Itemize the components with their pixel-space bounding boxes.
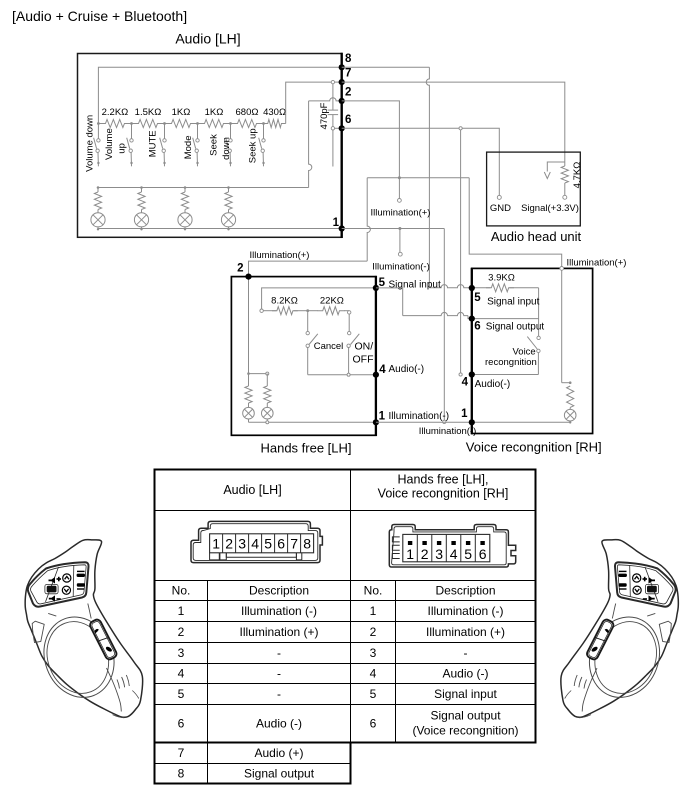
svg-text:4.7KΩ: 4.7KΩ (572, 162, 583, 189)
svg-text:Seek up: Seek up (248, 128, 259, 163)
svg-text:Audio(-): Audio(-) (475, 379, 511, 390)
svg-text:Illumination(+): Illumination(+) (567, 258, 627, 269)
svg-text:2: 2 (421, 546, 429, 562)
svg-text:6: 6 (345, 114, 351, 126)
svg-text:MUTE: MUTE (148, 130, 159, 157)
svg-text:Illumination(+): Illumination(+) (250, 250, 310, 261)
svg-text:Volume: Volume (104, 128, 115, 160)
svg-text:OFF: OFF (353, 354, 374, 366)
svg-text:Signal output: Signal output (244, 767, 315, 781)
svg-text:470pF: 470pF (319, 102, 330, 129)
svg-text:7: 7 (290, 536, 298, 552)
svg-text:3: 3 (178, 646, 185, 660)
svg-text:1KΩ: 1KΩ (172, 107, 191, 118)
svg-text:8.2KΩ: 8.2KΩ (271, 296, 298, 307)
svg-text:up: up (116, 143, 127, 154)
svg-text:1.5KΩ: 1.5KΩ (135, 107, 162, 118)
svg-text:7: 7 (178, 746, 185, 760)
svg-text:Signal output: Signal output (430, 709, 501, 723)
svg-text:5: 5 (178, 687, 185, 701)
svg-text:2: 2 (370, 625, 377, 639)
svg-text:Seek: Seek (209, 134, 220, 156)
svg-text:4: 4 (370, 667, 377, 681)
svg-text:1: 1 (178, 604, 185, 618)
svg-text:Signal(+3.3V): Signal(+3.3V) (521, 203, 579, 214)
svg-text:Signal input: Signal input (434, 687, 497, 701)
svg-text:No.: No. (172, 584, 191, 598)
svg-text:Audio(-): Audio(-) (389, 364, 425, 375)
svg-text:Illumination (+): Illumination (+) (426, 625, 505, 639)
svg-text:Hands free [LH],: Hands free [LH], (397, 473, 488, 487)
svg-text:3.9KΩ: 3.9KΩ (488, 272, 515, 283)
svg-text:430Ω: 430Ω (263, 107, 286, 118)
svg-text:5: 5 (370, 687, 377, 701)
svg-text:(Voice recongnition): (Voice recongnition) (412, 724, 518, 738)
svg-text:-: - (277, 667, 281, 681)
svg-text:Illumination(-): Illumination(-) (372, 262, 430, 273)
svg-text:2: 2 (178, 625, 185, 639)
svg-text:5: 5 (474, 292, 481, 304)
svg-text:8: 8 (345, 53, 352, 65)
svg-text:Illumination(+): Illumination(+) (371, 208, 431, 219)
svg-text:6: 6 (178, 717, 185, 731)
svg-text:Mode: Mode (183, 136, 194, 160)
svg-text:3: 3 (238, 536, 246, 552)
svg-text:Signal input: Signal input (487, 296, 539, 307)
svg-text:1: 1 (370, 604, 377, 618)
svg-text:8: 8 (303, 536, 311, 552)
svg-text:-: - (277, 646, 281, 660)
svg-text:Audio (+): Audio (+) (254, 746, 303, 760)
svg-text:4: 4 (251, 536, 259, 552)
svg-text:Voice: Voice (512, 346, 535, 357)
svg-text:Description: Description (435, 584, 495, 598)
svg-text:-: - (277, 687, 281, 701)
svg-text:Voice recongnition [RH]: Voice recongnition [RH] (378, 487, 509, 501)
svg-text:680Ω: 680Ω (236, 107, 259, 118)
svg-text:Audio [LH]: Audio [LH] (223, 483, 281, 497)
svg-text:Audio head unit: Audio head unit (491, 229, 582, 244)
svg-text:Audio (-): Audio (-) (442, 667, 488, 681)
svg-text:4: 4 (450, 546, 458, 562)
svg-text:4: 4 (462, 376, 469, 388)
svg-text:Illumination (-): Illumination (-) (241, 604, 317, 618)
svg-text:7: 7 (345, 68, 351, 80)
svg-text:Cancel: Cancel (314, 341, 344, 352)
svg-text:Description: Description (249, 584, 309, 598)
svg-text:1: 1 (406, 546, 414, 562)
svg-text:Voice recongnition [RH]: Voice recongnition [RH] (466, 440, 602, 455)
svg-text:2: 2 (237, 263, 243, 275)
svg-text:1: 1 (212, 536, 220, 552)
svg-text:5: 5 (464, 546, 472, 562)
svg-text:3: 3 (435, 546, 443, 562)
svg-text:-: - (464, 646, 468, 660)
svg-text:Volume down: Volume down (84, 115, 95, 172)
svg-text:2: 2 (225, 536, 233, 552)
svg-text:recongnition: recongnition (485, 357, 537, 368)
svg-text:No.: No. (364, 584, 383, 598)
svg-text:4: 4 (178, 667, 185, 681)
svg-text:2: 2 (345, 86, 351, 98)
svg-text:down: down (221, 137, 232, 160)
svg-text:Signal output: Signal output (486, 321, 545, 332)
svg-text:[Audio + Cruise + Bluetooth]: [Audio + Cruise + Bluetooth] (12, 8, 187, 24)
svg-text:2.2KΩ: 2.2KΩ (102, 107, 129, 118)
svg-text:22KΩ: 22KΩ (320, 296, 344, 307)
svg-text:Illumination (-): Illumination (-) (427, 604, 503, 618)
svg-text:Signal input: Signal input (389, 280, 441, 291)
svg-text:Illumination (+): Illumination (+) (239, 625, 318, 639)
svg-text:Illumination(-): Illumination(-) (389, 411, 450, 422)
svg-text:6: 6 (479, 546, 487, 562)
svg-text:1KΩ: 1KΩ (205, 107, 224, 118)
svg-text:1: 1 (461, 408, 468, 420)
svg-text:Illumination(-): Illumination(-) (419, 426, 477, 437)
svg-text:GND: GND (490, 203, 511, 214)
svg-text:5: 5 (264, 536, 272, 552)
svg-text:1: 1 (333, 217, 340, 229)
svg-text:Audio (-): Audio (-) (256, 717, 302, 731)
svg-text:ON/: ON/ (355, 341, 374, 353)
svg-text:1: 1 (379, 411, 386, 423)
svg-text:Audio [LH]: Audio [LH] (175, 31, 240, 47)
svg-text:6: 6 (370, 717, 377, 731)
svg-text:3: 3 (370, 646, 377, 660)
svg-text:4: 4 (379, 364, 386, 376)
svg-text:8: 8 (178, 767, 185, 781)
svg-text:6: 6 (277, 536, 285, 552)
svg-text:6: 6 (474, 321, 480, 333)
svg-text:Hands free [LH]: Hands free [LH] (260, 441, 351, 456)
svg-text:5: 5 (379, 277, 386, 289)
